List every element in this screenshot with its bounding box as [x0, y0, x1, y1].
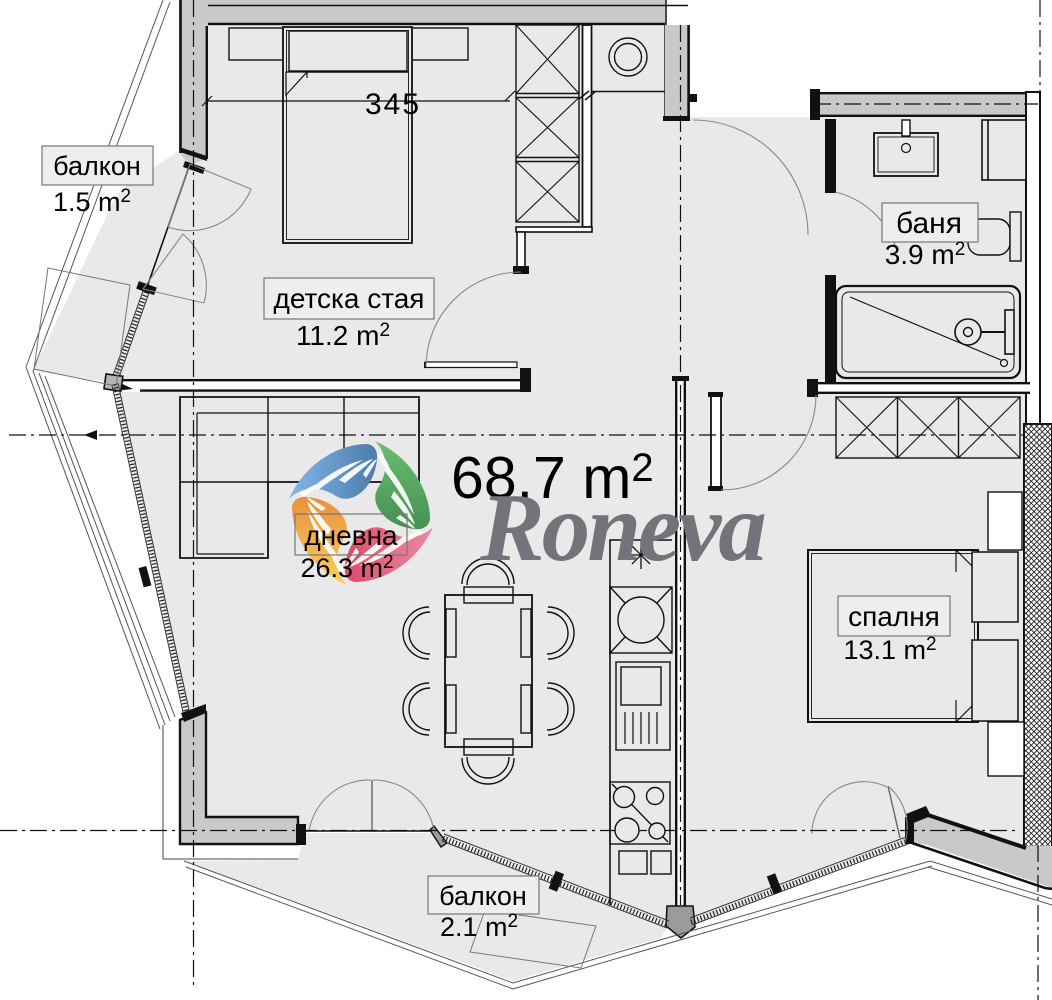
svg-text:балкон: балкон: [53, 151, 141, 181]
svg-text:Roneva: Roneva: [479, 474, 765, 581]
svg-text:2.1 m2: 2.1 m2: [440, 911, 518, 942]
svg-text:баня: баня: [896, 207, 962, 240]
svg-text:345: 345: [365, 88, 421, 121]
svg-text:1.5 m2: 1.5 m2: [53, 186, 131, 217]
svg-text:детска стая: детска стая: [274, 283, 425, 314]
svg-text:спалня: спалня: [848, 601, 940, 632]
svg-text:26.3 m2: 26.3 m2: [300, 552, 393, 583]
svg-text:3.9 m2: 3.9 m2: [885, 239, 966, 270]
svg-text:13.1 m2: 13.1 m2: [843, 634, 936, 665]
svg-text:дневна: дневна: [304, 520, 398, 551]
svg-text:11.2 m2: 11.2 m2: [296, 320, 390, 351]
svg-text:балкон: балкон: [439, 881, 527, 911]
